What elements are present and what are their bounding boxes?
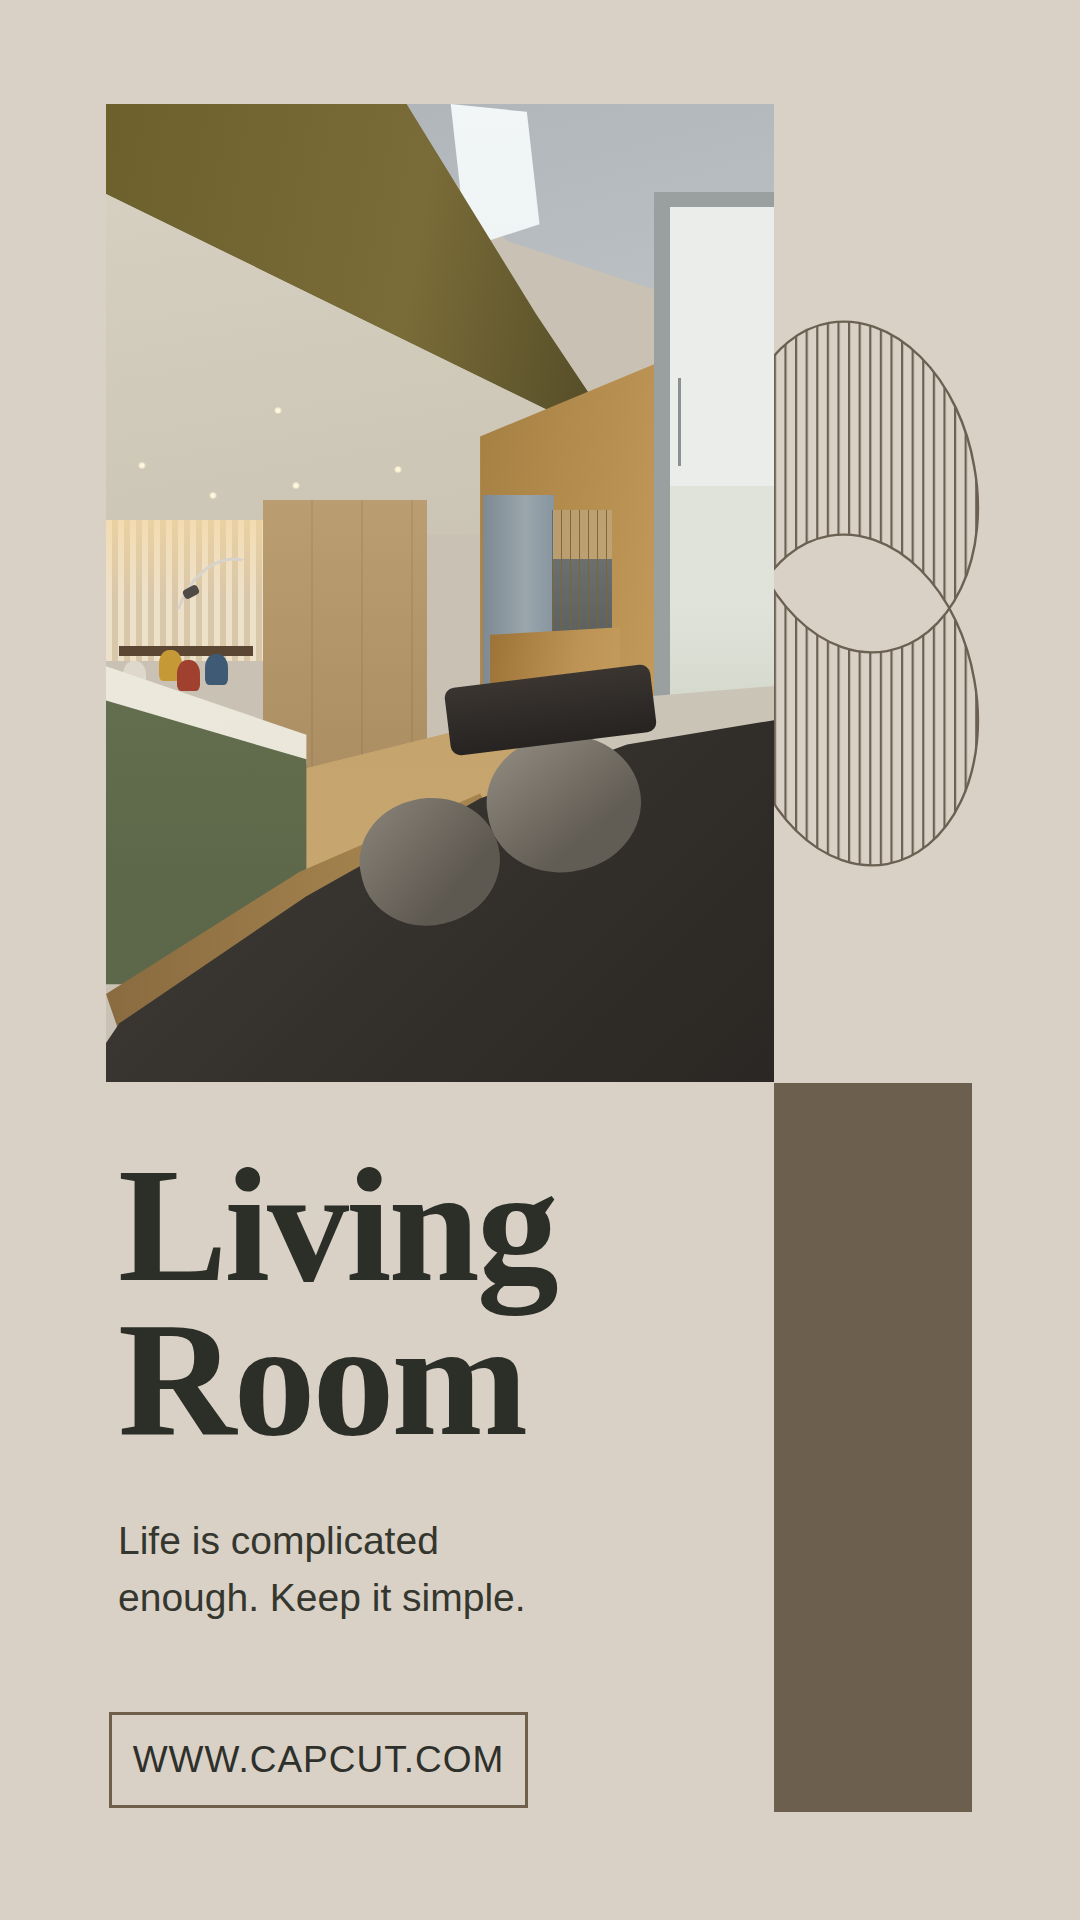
photo-glass-door xyxy=(670,207,774,716)
poster-title-line1: Living xyxy=(118,1148,556,1302)
poster-subtitle-line1: Life is complicated xyxy=(118,1512,526,1569)
interior-photo xyxy=(106,104,774,1082)
poster-title: Living Room xyxy=(118,1148,556,1456)
poster-canvas: Living Room Life is complicated enough. … xyxy=(0,0,1080,1920)
website-label: WWW.CAPCUT.COM xyxy=(133,1739,505,1781)
photo-spotlight xyxy=(393,466,403,473)
poster-title-line2: Room xyxy=(118,1302,556,1456)
photo-chair xyxy=(205,654,228,685)
photo-chair xyxy=(177,660,200,691)
accent-rectangle xyxy=(774,1083,972,1812)
poster-subtitle-line2: enough. Keep it simple. xyxy=(118,1569,526,1626)
photo-door-handle xyxy=(678,378,681,466)
photo-spotlight xyxy=(208,492,218,499)
poster-subtitle: Life is complicated enough. Keep it simp… xyxy=(118,1512,526,1626)
photo-dining-table xyxy=(119,646,253,656)
website-box: WWW.CAPCUT.COM xyxy=(109,1712,528,1808)
